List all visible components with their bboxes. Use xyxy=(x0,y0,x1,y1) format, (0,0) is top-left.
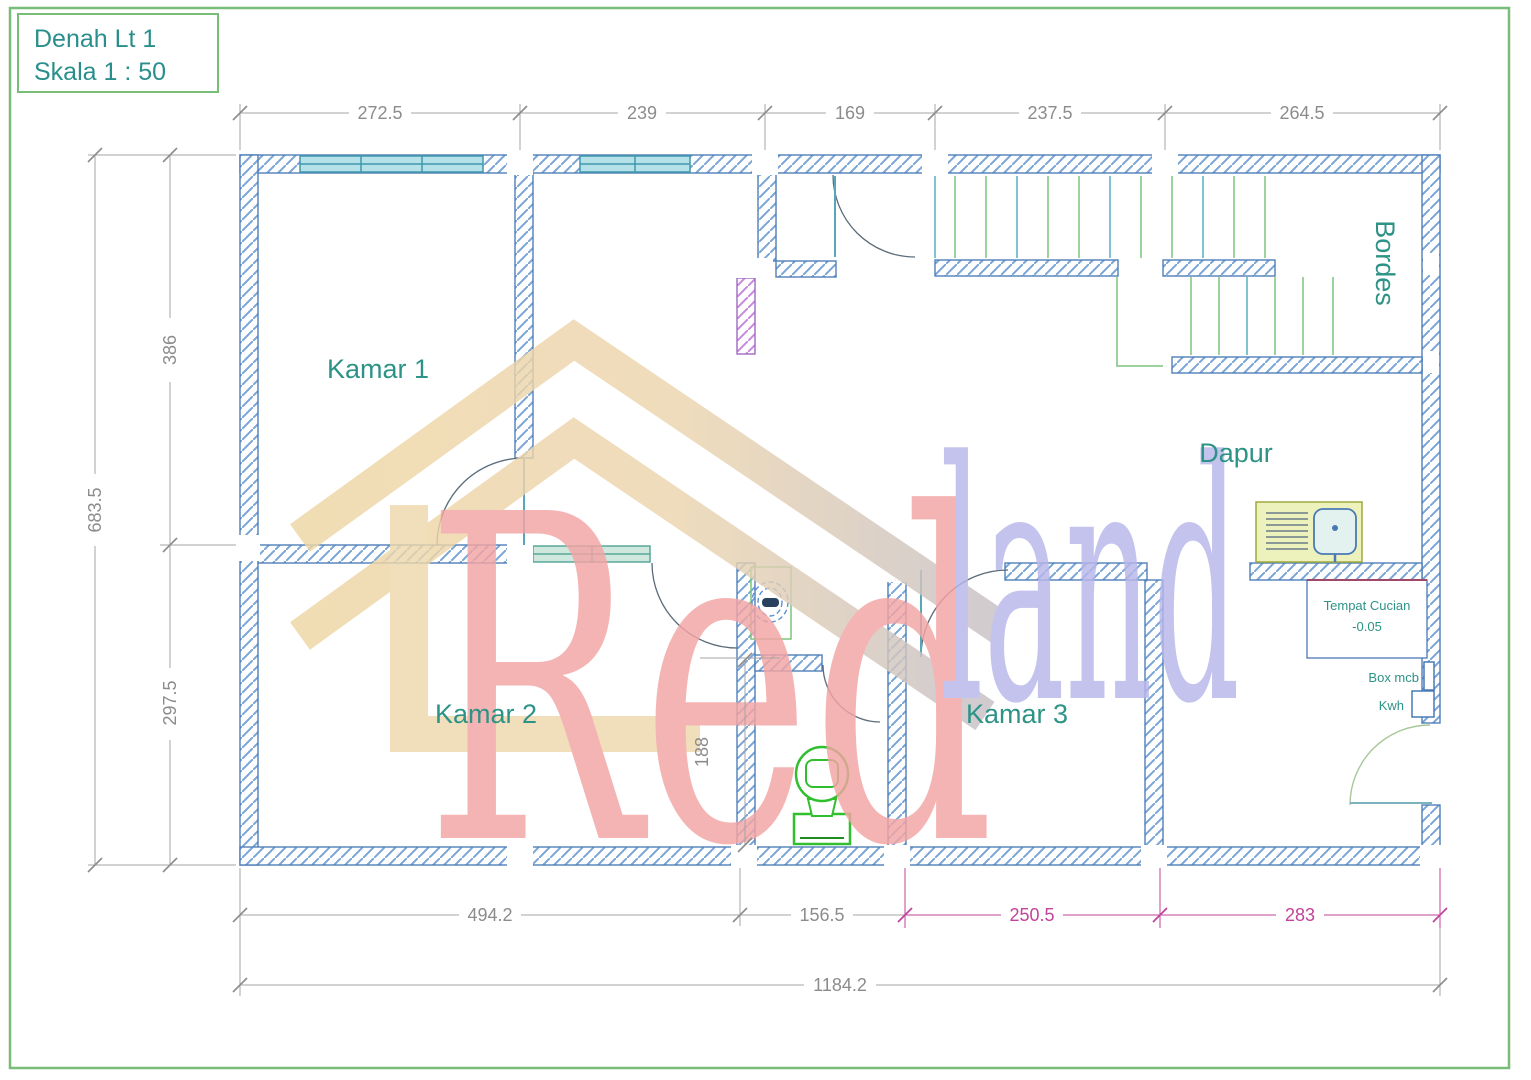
floor-plan-page: Denah Lt 1 Skala 1 : 50 xyxy=(0,0,1531,1080)
label-box-mcb: Box mcb xyxy=(1368,670,1419,685)
window-kamar1 xyxy=(300,156,483,172)
wall-stair-mid-b xyxy=(1163,260,1275,276)
kwh-meter-icon xyxy=(1412,691,1434,717)
dimension-chain-left xyxy=(88,148,236,872)
dim-top-3: 169 xyxy=(835,103,865,123)
label-kamar3: Kamar 3 xyxy=(966,699,1068,729)
dim-left-1: 386 xyxy=(160,335,180,365)
kitchen-sink-icon xyxy=(1256,502,1362,562)
watermark-word-red: Red xyxy=(425,421,995,945)
label-dapur: Dapur xyxy=(1199,438,1273,468)
dim-left-2: 297.5 xyxy=(160,680,180,725)
door-arc-entry xyxy=(833,175,915,257)
wall-entry-stub xyxy=(776,261,836,277)
dim-bottom-4: 283 xyxy=(1285,905,1315,925)
door-arc-back xyxy=(1350,725,1430,805)
dim-left-total: 683.5 xyxy=(85,487,105,532)
dim-bottom-1: 494.2 xyxy=(467,905,512,925)
dim-bottom-3: 250.5 xyxy=(1009,905,1054,925)
dim-interior-188: 188 xyxy=(692,737,712,767)
label-kamar1: Kamar 1 xyxy=(327,354,429,384)
floor-plan-canvas: Denah Lt 1 Skala 1 : 50 xyxy=(0,0,1531,1080)
wall-purple-segment xyxy=(737,278,755,354)
label-kwh: Kwh xyxy=(1379,698,1404,713)
dim-top-5: 264.5 xyxy=(1279,103,1324,123)
wall-stair-lower xyxy=(1172,357,1422,373)
label-bordes: Bordes xyxy=(1370,220,1400,306)
box-mcb-icon xyxy=(1424,662,1434,690)
wall-kamar1-right xyxy=(515,173,533,458)
wall-exterior-left xyxy=(240,155,258,865)
plan-scale: Skala 1 : 50 xyxy=(34,58,166,86)
dim-top-1: 272.5 xyxy=(357,103,402,123)
dim-top-2: 239 xyxy=(627,103,657,123)
label-tempat-cucian-level: -0.05 xyxy=(1352,619,1382,634)
wall-kitchen xyxy=(1250,563,1422,580)
window-hall-top xyxy=(580,156,690,172)
title-box: Denah Lt 1 Skala 1 : 50 xyxy=(18,14,218,92)
stairs-upper-flight xyxy=(935,176,1265,258)
label-tempat-cucian: Tempat Cucian xyxy=(1324,598,1411,613)
dim-bottom-2: 156.5 xyxy=(799,905,844,925)
dim-top-4: 237.5 xyxy=(1027,103,1072,123)
label-kamar2: Kamar 2 xyxy=(435,699,537,729)
dimension-labels-left: 386 297.5 683.5 xyxy=(85,318,180,740)
wall-entry-vertical xyxy=(758,173,776,261)
plan-title: Denah Lt 1 xyxy=(34,25,156,53)
dim-bottom-total: 1184.2 xyxy=(813,975,867,995)
wall-stair-mid-a xyxy=(935,260,1118,276)
stairs-lower-flight xyxy=(1117,277,1333,366)
